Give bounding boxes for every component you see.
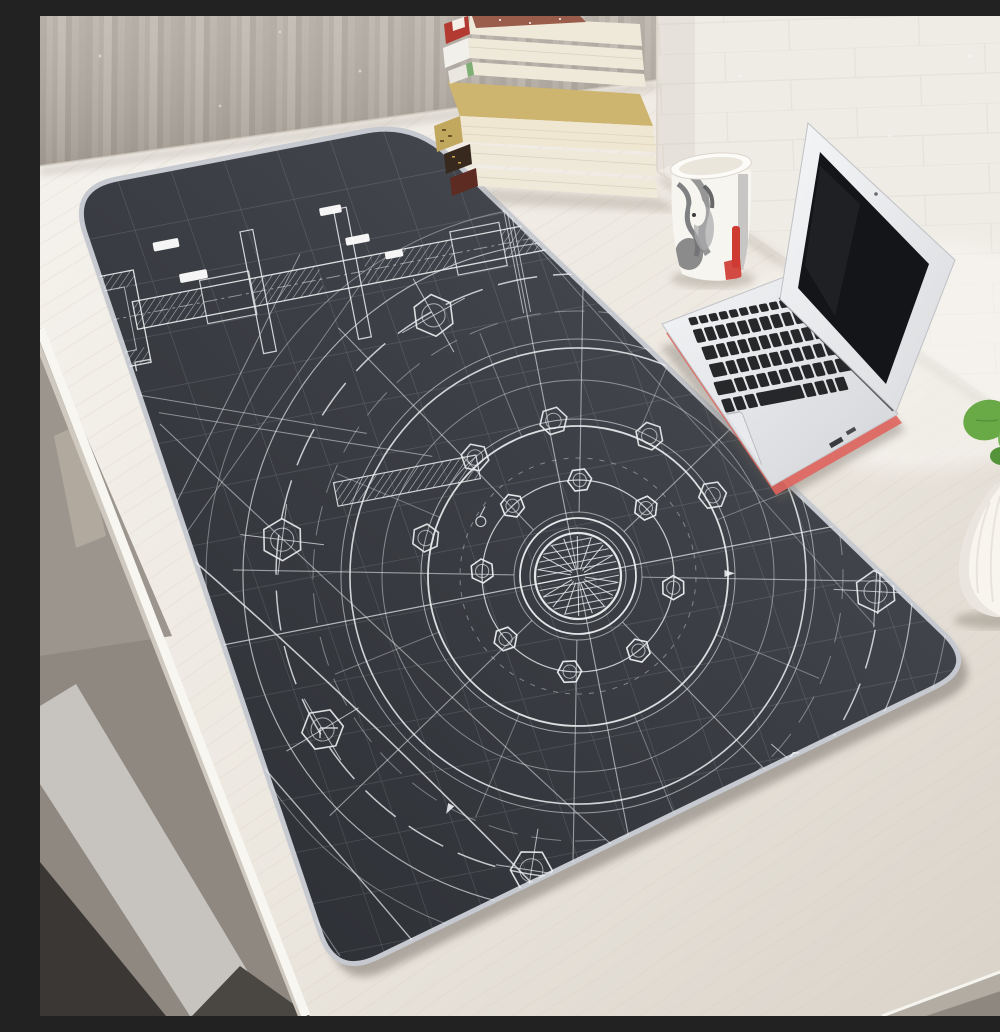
art-mug <box>669 149 755 288</box>
webcam-dot <box>874 192 878 196</box>
product-photo <box>40 16 1000 1016</box>
scene-canvas <box>40 16 1000 1016</box>
wall-corner-shade <box>657 16 695 171</box>
